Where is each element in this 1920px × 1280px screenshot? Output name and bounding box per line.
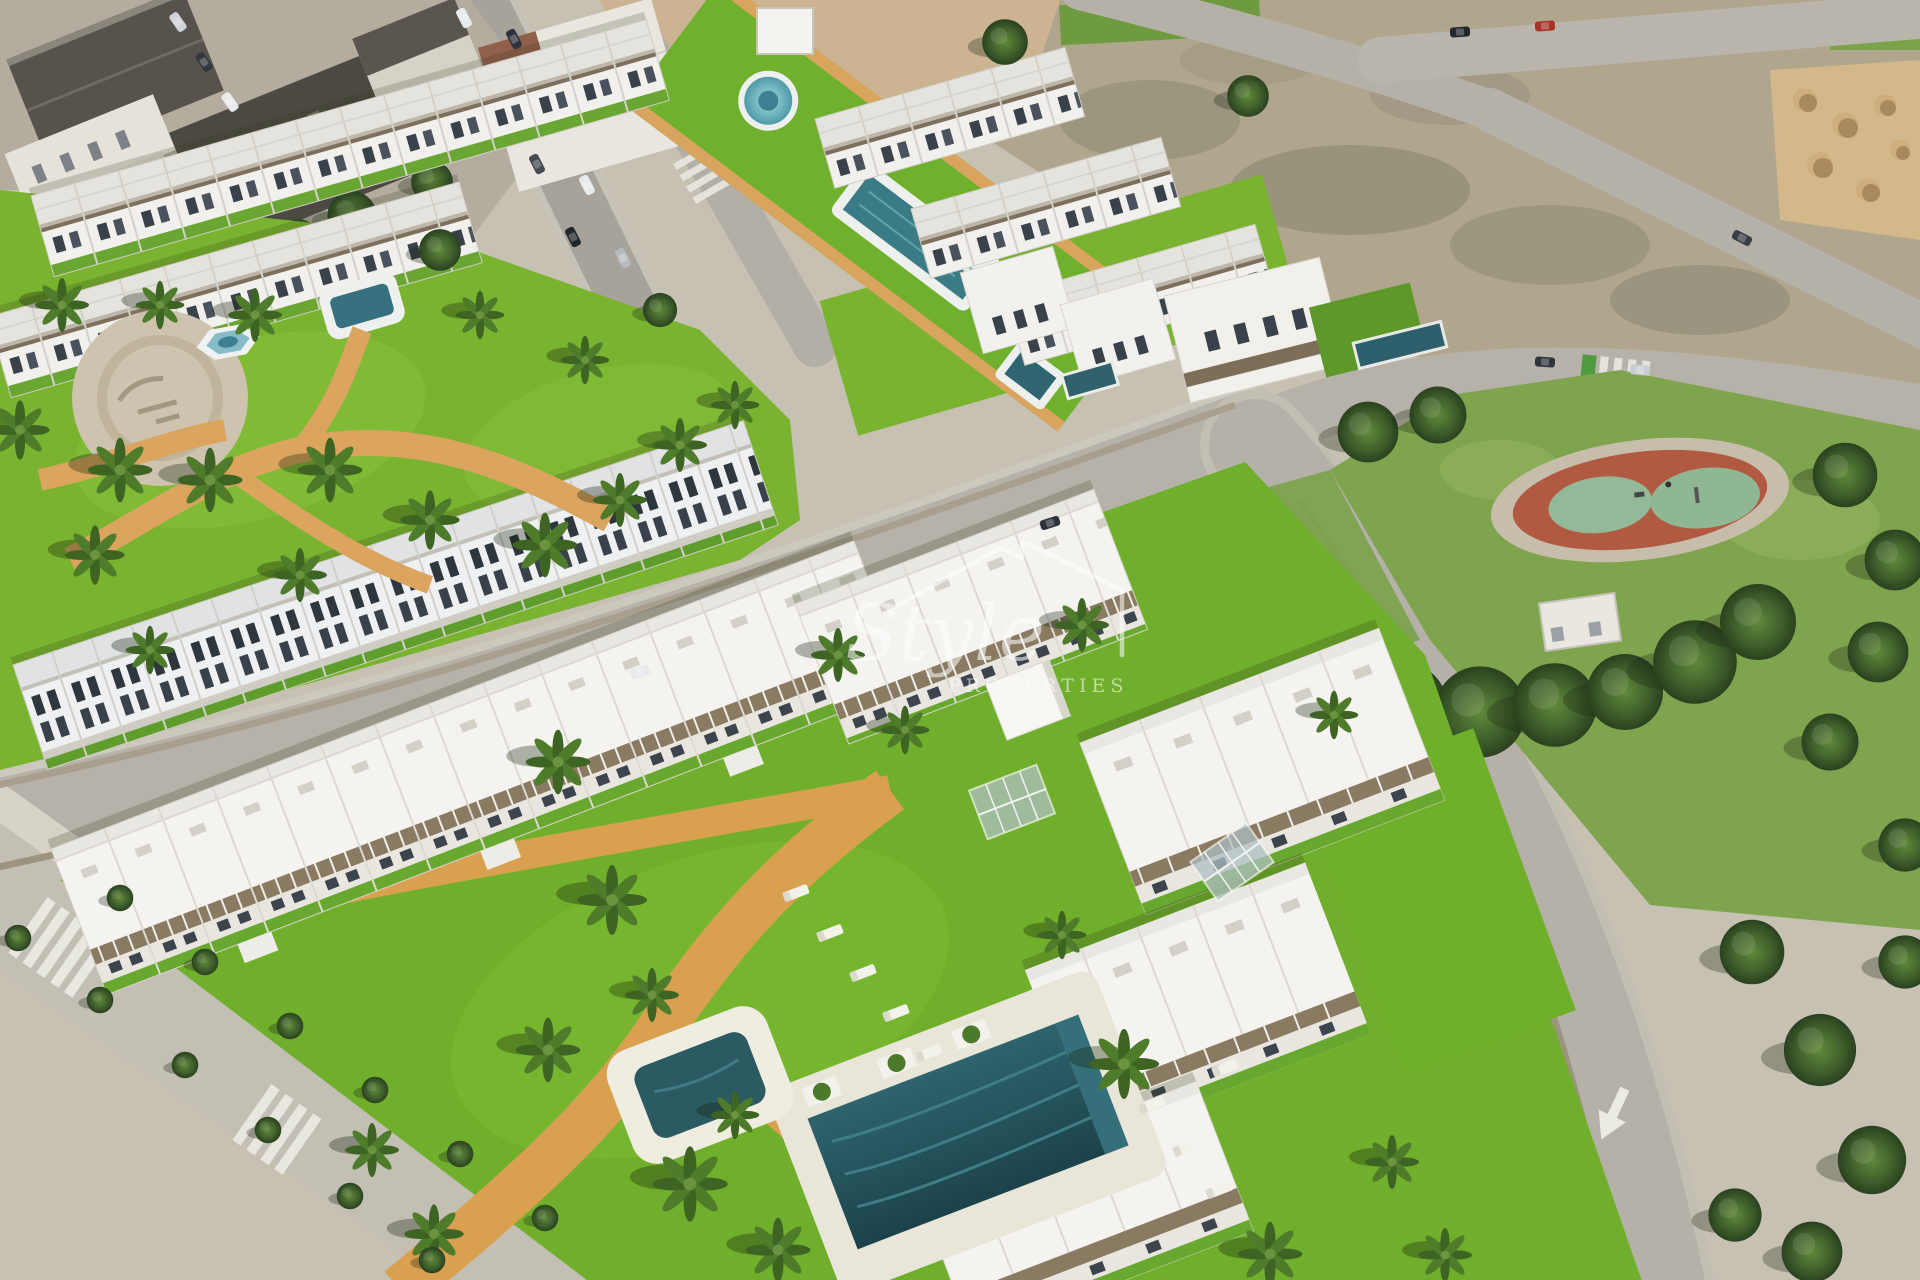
utility-building xyxy=(1539,593,1621,651)
aerial-render-image: Style PROPERTIES xyxy=(0,0,1920,1280)
car-red xyxy=(1535,20,1556,31)
car xyxy=(1630,364,1651,376)
scene-canvas: Style PROPERTIES xyxy=(0,0,1920,1280)
shed xyxy=(757,8,813,54)
car xyxy=(1450,26,1471,37)
brand-caps: PROPERTIES xyxy=(948,675,1128,697)
brand-script: Style xyxy=(845,589,1045,679)
car xyxy=(1535,356,1556,367)
